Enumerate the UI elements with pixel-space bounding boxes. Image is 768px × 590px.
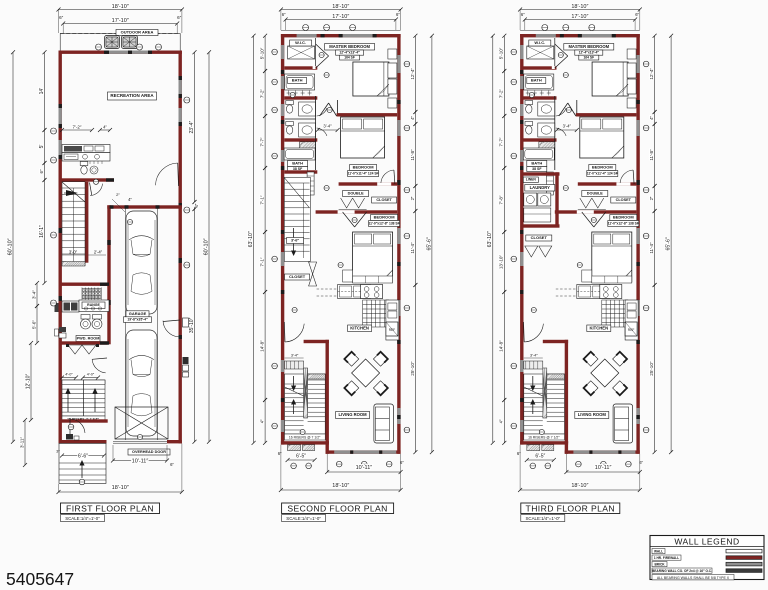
svg-text:6′-5″: 6′-5″ bbox=[535, 454, 545, 460]
svg-text:7′-2″: 7′-2″ bbox=[73, 124, 82, 129]
svg-text:SECOND FLOOR PLAN: SECOND FLOOR PLAN bbox=[287, 503, 387, 513]
svg-text:4″: 4″ bbox=[194, 203, 199, 207]
svg-text:17′-10″: 17′-10″ bbox=[112, 18, 129, 24]
svg-text:6″: 6″ bbox=[39, 169, 44, 174]
svg-text:4″: 4″ bbox=[103, 124, 107, 129]
svg-text:GARAGE: GARAGE bbox=[129, 311, 147, 316]
svg-text:18′-10″: 18′-10″ bbox=[332, 4, 349, 10]
svg-text:16 RISERS @ 7 1/2″: 16 RISERS @ 7 1/2″ bbox=[289, 436, 321, 440]
svg-text:7′-1″: 7′-1″ bbox=[260, 195, 265, 205]
svg-text:12′-4″: 12′-4″ bbox=[649, 68, 654, 80]
svg-text:11′-8″: 11′-8″ bbox=[410, 149, 415, 161]
svg-text:4′-0″: 4′-0″ bbox=[65, 373, 73, 377]
svg-text:3′-4″: 3′-4″ bbox=[323, 124, 332, 129]
svg-text:14′: 14′ bbox=[39, 88, 45, 95]
svg-text:10′-11″: 10′-11″ bbox=[132, 459, 149, 465]
svg-text:60′-10″: 60′-10″ bbox=[203, 238, 209, 255]
svg-text:18′-10″: 18′-10″ bbox=[112, 485, 129, 491]
svg-text:11′-0″x12′-8″ 138 SF: 11′-0″x12′-8″ 138 SF bbox=[608, 221, 639, 225]
svg-text:38 SF: 38 SF bbox=[293, 167, 303, 171]
svg-text:6′-6″: 6′-6″ bbox=[78, 453, 88, 459]
svg-text:18′-10″: 18′-10″ bbox=[571, 4, 588, 10]
svg-text:SCALE:1/4″=1′-0″: SCALE:1/4″=1′-0″ bbox=[526, 516, 561, 521]
svg-text:11′-0″x11′-4″ 124 SF: 11′-0″x11′-4″ 124 SF bbox=[587, 171, 618, 175]
svg-text:BATH: BATH bbox=[292, 161, 303, 166]
svg-text:65′-6″: 65′-6″ bbox=[666, 237, 672, 250]
svg-text:12′-4″x13′-4″: 12′-4″x13′-4″ bbox=[579, 50, 600, 54]
svg-text:CLOSET: CLOSET bbox=[531, 235, 548, 240]
svg-text:6″: 6″ bbox=[170, 462, 174, 467]
svg-text:12′-10″: 12′-10″ bbox=[25, 374, 31, 390]
svg-text:63′-10″: 63′-10″ bbox=[487, 231, 493, 247]
svg-text:WALL: WALL bbox=[654, 550, 663, 554]
svg-text:6′-5″: 6′-5″ bbox=[296, 454, 306, 460]
svg-text:7′-2″: 7′-2″ bbox=[260, 89, 265, 99]
svg-text:BEDROOM: BEDROOM bbox=[613, 215, 635, 220]
svg-text:2″: 2″ bbox=[410, 196, 415, 200]
svg-text:7′-7″: 7′-7″ bbox=[499, 137, 504, 147]
svg-text:3′-4″: 3′-4″ bbox=[31, 290, 36, 299]
svg-text:14′-8″: 14′-8″ bbox=[499, 340, 504, 352]
svg-text:KITCHEN: KITCHEN bbox=[350, 325, 369, 330]
svg-text:3′-4″: 3′-4″ bbox=[291, 354, 299, 358]
svg-text:17′-10″: 17′-10″ bbox=[332, 14, 349, 20]
svg-text:KITCHEN: KITCHEN bbox=[589, 325, 608, 330]
svg-text:5405647: 5405647 bbox=[6, 569, 74, 589]
svg-text:60′-10″: 60′-10″ bbox=[7, 238, 13, 255]
svg-text:11′-0″x11′-4″ 124 SF: 11′-0″x11′-4″ 124 SF bbox=[348, 171, 379, 175]
svg-text:MASTER BEDROOM: MASTER BEDROOM bbox=[329, 44, 370, 49]
svg-text:7′-2″: 7′-2″ bbox=[499, 89, 504, 99]
svg-text:ALL BEARING WALLS SHALL BE 5/8: ALL BEARING WALLS SHALL BE 5/8 TYPE X bbox=[657, 576, 730, 580]
svg-text:6″: 6″ bbox=[396, 12, 400, 17]
svg-text:3″: 3″ bbox=[56, 449, 60, 454]
svg-text:BRICK: BRICK bbox=[654, 563, 665, 567]
svg-text:16′-1″: 16′-1″ bbox=[39, 225, 45, 238]
svg-text:11′-0″x12′-8″ 138 SF: 11′-0″x12′-8″ 138 SF bbox=[369, 221, 400, 225]
svg-text:12′-4″: 12′-4″ bbox=[410, 68, 415, 80]
svg-text:2″: 2″ bbox=[116, 192, 120, 197]
svg-text:FIRST FLOOR PLAN: FIRST FLOOR PLAN bbox=[66, 503, 154, 513]
svg-text:18′-10″: 18′-10″ bbox=[112, 4, 129, 10]
svg-text:WALL LEGEND: WALL LEGEND bbox=[674, 537, 739, 547]
svg-text:OVERHEAD DOOR: OVERHEAD DOOR bbox=[132, 450, 166, 454]
svg-text:REF: REF bbox=[389, 328, 395, 332]
svg-text:5′-10″: 5′-10″ bbox=[499, 47, 504, 59]
svg-text:1 HR. FIREWALL: 1 HR. FIREWALL bbox=[654, 556, 679, 560]
svg-text:LAUNDRY: LAUNDRY bbox=[530, 185, 551, 190]
svg-text:35′-10″: 35′-10″ bbox=[189, 317, 195, 333]
svg-text:4″: 4″ bbox=[649, 116, 654, 120]
svg-text:6″: 6″ bbox=[278, 451, 282, 456]
svg-text:OUTDOOR AREA: OUTDOOR AREA bbox=[121, 30, 154, 35]
svg-text:10′-11″: 10′-11″ bbox=[595, 465, 612, 471]
svg-text:BEDROOM: BEDROOM bbox=[353, 165, 375, 170]
svg-text:SCALE:1/4″=1′-0″: SCALE:1/4″=1′-0″ bbox=[65, 516, 100, 521]
svg-text:BATH: BATH bbox=[292, 78, 303, 83]
svg-text:3′-6″: 3′-6″ bbox=[291, 239, 299, 243]
svg-text:13′-10″: 13′-10″ bbox=[499, 255, 504, 270]
svg-text:14′-8″: 14′-8″ bbox=[260, 340, 265, 352]
svg-text:7′-7″: 7′-7″ bbox=[260, 137, 265, 147]
svg-text:THIRD FLOOR PLAN: THIRD FLOOR PLAN bbox=[526, 503, 615, 513]
svg-text:MASTER BEDROOM: MASTER BEDROOM bbox=[568, 44, 609, 49]
svg-text:6″: 6″ bbox=[177, 15, 182, 20]
svg-text:2″: 2″ bbox=[649, 196, 654, 200]
svg-text:12′-4″x13′-4″: 12′-4″x13′-4″ bbox=[339, 50, 360, 54]
svg-text:3′-4″: 3′-4″ bbox=[530, 354, 538, 358]
svg-text:18′-10″: 18′-10″ bbox=[571, 483, 588, 489]
svg-text:11′-4″: 11′-4″ bbox=[410, 242, 415, 254]
svg-text:LINEN: LINEN bbox=[526, 178, 537, 182]
svg-text:23′-4″: 23′-4″ bbox=[189, 121, 195, 134]
svg-text:5′-6″: 5′-6″ bbox=[31, 320, 36, 329]
svg-text:38 SF: 38 SF bbox=[532, 167, 542, 171]
svg-text:164 SF: 164 SF bbox=[583, 55, 594, 59]
svg-text:W.I.C.: W.I.C. bbox=[534, 40, 545, 45]
svg-text:16 RISERS @ 7 1/2″: 16 RISERS @ 7 1/2″ bbox=[528, 436, 560, 440]
svg-text:6″: 6″ bbox=[282, 12, 286, 17]
svg-text:BEDROOM: BEDROOM bbox=[374, 215, 396, 220]
svg-text:6″: 6″ bbox=[635, 12, 639, 17]
svg-text:18′-10″: 18′-10″ bbox=[332, 483, 349, 489]
svg-text:RECREATION AREA: RECREATION AREA bbox=[110, 93, 154, 98]
svg-text:3′-0″: 3′-0″ bbox=[69, 250, 78, 255]
svg-text:19′-8″x35′-4″: 19′-8″x35′-4″ bbox=[127, 317, 148, 321]
svg-text:164 SF: 164 SF bbox=[344, 55, 355, 59]
svg-text:PWD. ROOM: PWD. ROOM bbox=[77, 337, 100, 341]
svg-text:7′-1″: 7′-1″ bbox=[260, 257, 265, 267]
svg-text:63′-10″: 63′-10″ bbox=[248, 231, 254, 247]
svg-text:5′-10″: 5′-10″ bbox=[260, 47, 265, 59]
svg-text:CLOSET: CLOSET bbox=[376, 198, 392, 202]
svg-text:4″: 4″ bbox=[499, 419, 504, 423]
svg-text:BATH: BATH bbox=[531, 78, 542, 83]
svg-text:CLOSET: CLOSET bbox=[616, 198, 632, 202]
svg-text:11′-4″: 11′-4″ bbox=[649, 242, 654, 254]
svg-text:BEARING WALL CO. OF 2x4 @ 16″: BEARING WALL CO. OF 2x4 @ 16″ O.C. bbox=[652, 569, 712, 573]
svg-text:4″: 4″ bbox=[410, 116, 415, 120]
svg-text:11′-8″: 11′-8″ bbox=[649, 149, 654, 161]
svg-text:10′-11″: 10′-11″ bbox=[356, 465, 373, 471]
svg-text:DOUBLE: DOUBLE bbox=[587, 192, 603, 196]
svg-text:25′-10″: 25′-10″ bbox=[410, 361, 415, 376]
svg-text:3′-4″: 3′-4″ bbox=[563, 124, 572, 129]
svg-text:6″: 6″ bbox=[59, 15, 64, 20]
svg-text:4″: 4″ bbox=[128, 197, 132, 202]
svg-text:17′-10″: 17′-10″ bbox=[571, 14, 588, 20]
svg-text:6″: 6″ bbox=[517, 451, 521, 456]
svg-text:65′-6″: 65′-6″ bbox=[426, 237, 432, 250]
svg-text:BEDROOM: BEDROOM bbox=[592, 165, 614, 170]
svg-text:LIVING ROOM: LIVING ROOM bbox=[578, 412, 607, 417]
svg-text:LIVING ROOM: LIVING ROOM bbox=[339, 412, 368, 417]
svg-text:2′-4″: 2′-4″ bbox=[94, 250, 103, 255]
svg-text:6″: 6″ bbox=[521, 12, 525, 17]
svg-text:3′-11″: 3′-11″ bbox=[19, 437, 24, 449]
svg-text:RANGE: RANGE bbox=[87, 303, 100, 307]
svg-text:W.I.C.: W.I.C. bbox=[295, 40, 306, 45]
svg-text:4′-0″: 4′-0″ bbox=[87, 373, 95, 377]
svg-text:CLOSET: CLOSET bbox=[289, 274, 306, 279]
svg-text:REF: REF bbox=[628, 328, 634, 332]
svg-text:DOUBLE: DOUBLE bbox=[348, 192, 364, 196]
svg-text:SCALE:1/4″=1′-0″: SCALE:1/4″=1′-0″ bbox=[286, 516, 321, 521]
svg-text:7′-8″: 7′-8″ bbox=[499, 195, 504, 205]
svg-text:25′-10″: 25′-10″ bbox=[649, 361, 654, 376]
svg-text:4″: 4″ bbox=[260, 419, 265, 423]
svg-text:BATH: BATH bbox=[531, 161, 542, 166]
svg-text:5′: 5′ bbox=[39, 145, 45, 149]
